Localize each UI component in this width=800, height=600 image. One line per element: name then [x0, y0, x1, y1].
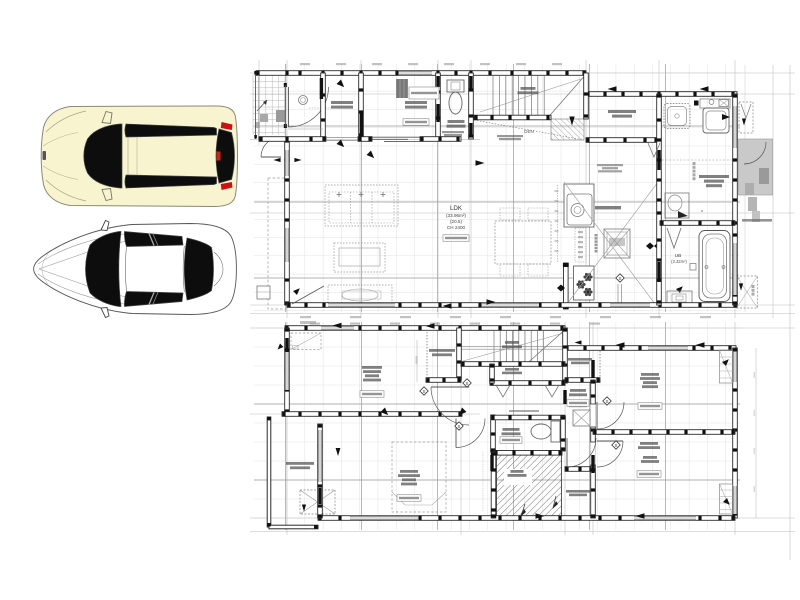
svg-text:S: S — [465, 381, 468, 386]
svg-text:(20.5): (20.5) — [450, 219, 462, 224]
svg-text:(33.96m²): (33.96m²) — [446, 213, 466, 218]
svg-text:S: S — [457, 424, 460, 429]
svg-text:CH 2400: CH 2400 — [447, 225, 466, 230]
svg-text:DEN: DEN — [524, 129, 534, 134]
svg-text:S: S — [614, 443, 617, 448]
svg-text:(3.32m²): (3.32m²) — [671, 259, 687, 264]
svg-text:LDK: LDK — [450, 205, 463, 212]
svg-text:S: S — [618, 276, 621, 281]
svg-text:S: S — [605, 399, 608, 404]
svg-text:S: S — [422, 389, 425, 394]
